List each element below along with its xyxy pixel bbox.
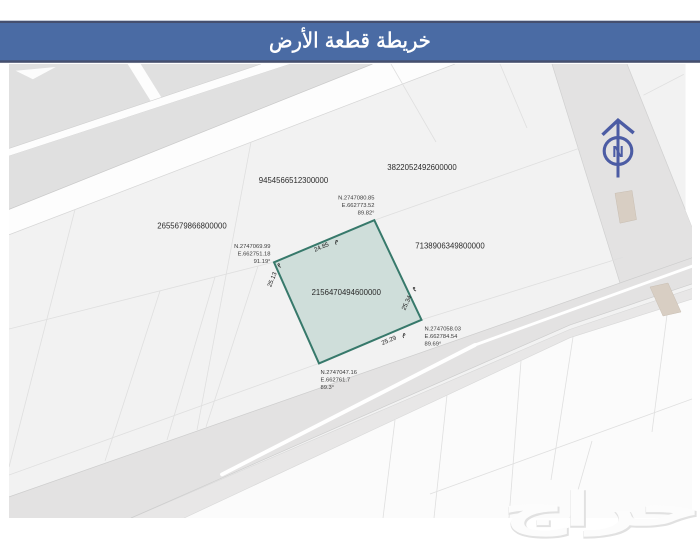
svg-text:E.662751.18: E.662751.18	[238, 251, 271, 257]
svg-text:89.69°: 89.69°	[425, 341, 442, 347]
svg-text:N.2747069.99: N.2747069.99	[234, 244, 270, 250]
svg-text:7138906349800000: 7138906349800000	[415, 241, 485, 250]
svg-text:3822052492600000: 3822052492600000	[387, 163, 457, 172]
svg-text:N: N	[612, 144, 624, 161]
svg-text:E.662784.54: E.662784.54	[425, 334, 459, 340]
svg-text:N.2747080.85: N.2747080.85	[338, 196, 374, 202]
svg-text:E.662773.52: E.662773.52	[342, 203, 375, 209]
svg-text:N.2747047.16: N.2747047.16	[321, 370, 357, 376]
svg-text:89.82°: 89.82°	[358, 210, 375, 216]
svg-text:2655679866800000: 2655679866800000	[157, 221, 227, 230]
svg-text:89.3°: 89.3°	[321, 385, 335, 391]
svg-text:9454566512300000: 9454566512300000	[259, 176, 329, 185]
svg-text:E.662761.7: E.662761.7	[321, 377, 351, 383]
svg-text:2156470494600000: 2156470494600000	[312, 288, 382, 297]
svg-text:N.2747058.03: N.2747058.03	[425, 327, 461, 333]
svg-text:91.19°: 91.19°	[254, 259, 271, 265]
